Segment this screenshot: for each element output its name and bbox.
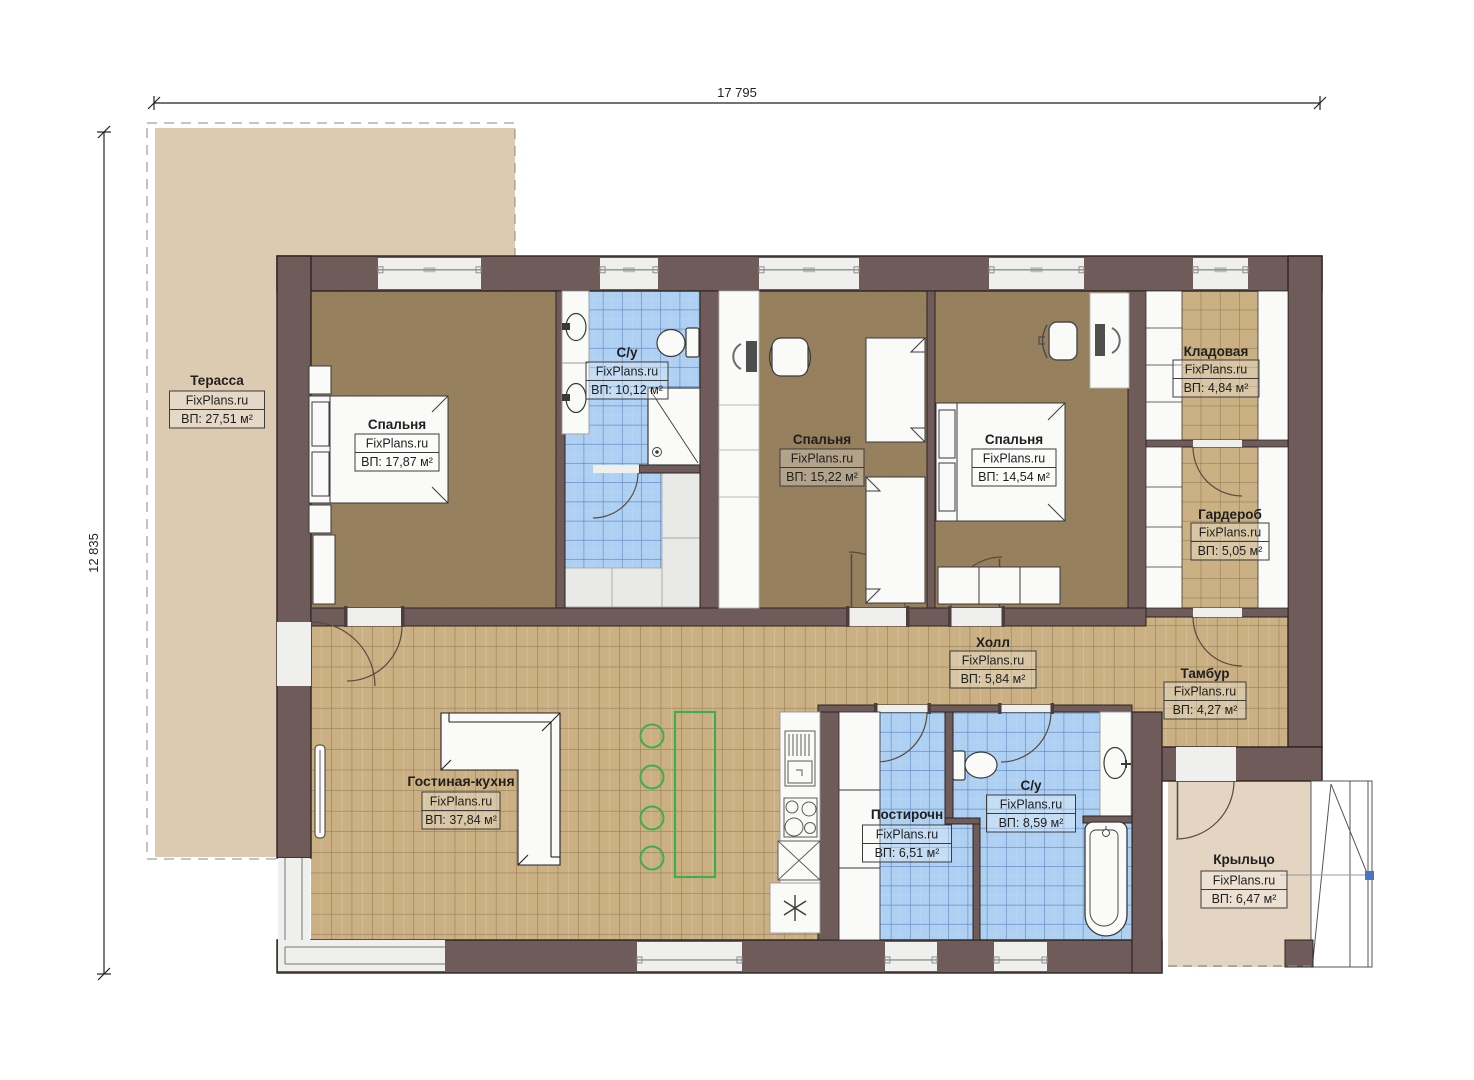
svg-text:Постирочн: Постирочн — [871, 807, 943, 822]
svg-text:С/у: С/у — [616, 345, 638, 360]
svg-text:FixPlans.ru: FixPlans.ru — [876, 828, 939, 842]
svg-text:FixPlans.ru: FixPlans.ru — [1213, 874, 1276, 888]
svg-text:FixPlans.ru: FixPlans.ru — [1199, 526, 1262, 540]
svg-text:Терасса: Терасса — [190, 373, 244, 388]
svg-text:Крыльцо: Крыльцо — [1213, 852, 1274, 867]
svg-text:FixPlans.ru: FixPlans.ru — [1185, 363, 1248, 377]
svg-text:С/у: С/у — [1020, 778, 1042, 793]
svg-text:ВП: 5,84 м²: ВП: 5,84 м² — [961, 672, 1026, 686]
svg-text:FixPlans.ru: FixPlans.ru — [791, 452, 854, 466]
svg-text:FixPlans.ru: FixPlans.ru — [366, 437, 429, 451]
svg-text:ВП: 4,27 м²: ВП: 4,27 м² — [1173, 703, 1238, 717]
svg-text:FixPlans.ru: FixPlans.ru — [1000, 798, 1063, 812]
svg-text:FixPlans.ru: FixPlans.ru — [1174, 685, 1237, 699]
svg-text:FixPlans.ru: FixPlans.ru — [430, 795, 493, 809]
svg-text:ВП: 5,05 м²: ВП: 5,05 м² — [1198, 544, 1263, 558]
svg-text:Гардероб: Гардероб — [1198, 507, 1262, 522]
svg-text:Холл: Холл — [976, 635, 1010, 650]
svg-text:ВП: 17,87 м²: ВП: 17,87 м² — [361, 455, 433, 469]
svg-text:Гостиная-кухня: Гостиная-кухня — [407, 773, 514, 789]
svg-text:17 795: 17 795 — [717, 85, 757, 100]
svg-text:FixPlans.ru: FixPlans.ru — [983, 452, 1046, 466]
svg-text:Кладовая: Кладовая — [1184, 344, 1249, 359]
svg-text:Тамбур: Тамбур — [1181, 666, 1230, 681]
svg-text:ВП: 27,51 м²: ВП: 27,51 м² — [181, 412, 253, 426]
svg-text:Спальня: Спальня — [985, 432, 1043, 447]
svg-text:Спальня: Спальня — [368, 417, 426, 432]
svg-text:ВП: 37,84 м²: ВП: 37,84 м² — [425, 813, 497, 827]
svg-text:ВП: 6,47 м²: ВП: 6,47 м² — [1212, 892, 1277, 906]
svg-text:FixPlans.ru: FixPlans.ru — [962, 654, 1025, 668]
svg-text:ВП: 14,54 м²: ВП: 14,54 м² — [978, 470, 1050, 484]
svg-text:12 835: 12 835 — [86, 533, 101, 573]
svg-text:ВП: 8,59 м²: ВП: 8,59 м² — [999, 816, 1064, 830]
svg-text:ВП: 6,51 м²: ВП: 6,51 м² — [875, 846, 940, 860]
svg-text:FixPlans.ru: FixPlans.ru — [186, 394, 249, 408]
svg-text:ВП: 4,84 м²: ВП: 4,84 м² — [1184, 381, 1249, 395]
svg-text:Спальня: Спальня — [793, 432, 851, 447]
svg-text:FixPlans.ru: FixPlans.ru — [596, 365, 659, 379]
svg-text:ВП: 10,12 м²: ВП: 10,12 м² — [591, 383, 663, 397]
svg-text:ВП: 15,22 м²: ВП: 15,22 м² — [786, 470, 858, 484]
